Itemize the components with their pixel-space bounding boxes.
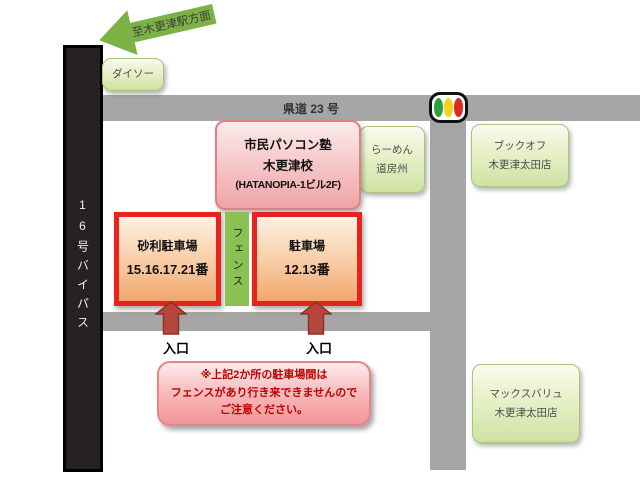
road-kendo-label: 県道 23 号 [283, 100, 339, 117]
parking-lot-gravel-numbers: 15.16.17.21番 [127, 258, 209, 283]
road-kendo-23: 県道 23 号 [103, 95, 640, 121]
school-building: (HATANOPIA-1ビル2F) [235, 177, 340, 195]
traffic-light-icon [429, 92, 468, 123]
road-lower [103, 312, 430, 331]
school-name-line2: 木更津校 [263, 156, 313, 177]
school-box: 市民パソコン塾 木更津校 (HATANOPIA-1ビル2F) [215, 120, 361, 210]
entrance-label-2: 入口 [306, 338, 332, 357]
landmark-daiso: ダイソー [102, 58, 164, 91]
school-name-line1: 市民パソコン塾 [244, 135, 332, 156]
landmark-maxvalu-line1: マックスバリュ [489, 385, 562, 404]
landmark-bookoff-line1: ブックオフ [494, 137, 547, 156]
parking-lot-gravel: 砂利駐車場 15.16.17.21番 [114, 212, 221, 306]
entrance-arrow-2-icon [300, 301, 332, 335]
landmark-ramen-line2: 道房州 [376, 160, 408, 179]
access-map: 16号バイパス 県道 23 号 至木更津駅方面 ダイソー らーめん 道房州 ブッ… [0, 0, 640, 480]
parking-lot-paved-name: 駐車場 [289, 235, 325, 258]
road-vertical-right [430, 95, 466, 470]
road-bypass-16: 16号バイパス [63, 45, 103, 472]
entrance-label-1: 入口 [163, 338, 189, 357]
notice-box: ※上記2か所の駐車場間は フェンスがあり行き来できませんので ご注意ください。 [157, 361, 371, 426]
parking-lot-paved: 駐車場 12.13番 [252, 212, 362, 306]
notice-line2: フェンスがあり行き来できませんので [171, 385, 357, 403]
notice-line1: ※上記2か所の駐車場間は [201, 367, 328, 385]
parking-lot-paved-numbers: 12.13番 [284, 258, 330, 283]
parking-lot-gravel-name: 砂利駐車場 [137, 235, 197, 258]
fence-label: フェンス [229, 227, 245, 291]
landmark-bookoff-line2: 木更津太田店 [489, 156, 552, 175]
landmark-bookoff: ブックオフ 木更津太田店 [471, 124, 569, 187]
landmark-ramen-line1: らーめん [371, 141, 413, 160]
landmark-daiso-label: ダイソー [112, 65, 154, 84]
traffic-light-red [454, 98, 463, 117]
landmark-maxvalu-line2: 木更津太田店 [495, 404, 558, 423]
landmark-ramen: らーめん 道房州 [359, 126, 425, 193]
traffic-light-green [434, 98, 443, 117]
traffic-light-yellow [444, 98, 453, 117]
entrance-arrow-1-icon [155, 301, 187, 335]
notice-line3: ご注意ください。 [220, 402, 308, 420]
road-bypass-label: 16号バイパス [75, 198, 92, 335]
fence-strip: フェンス [225, 212, 249, 306]
landmark-maxvalu: マックスバリュ 木更津太田店 [472, 364, 580, 443]
